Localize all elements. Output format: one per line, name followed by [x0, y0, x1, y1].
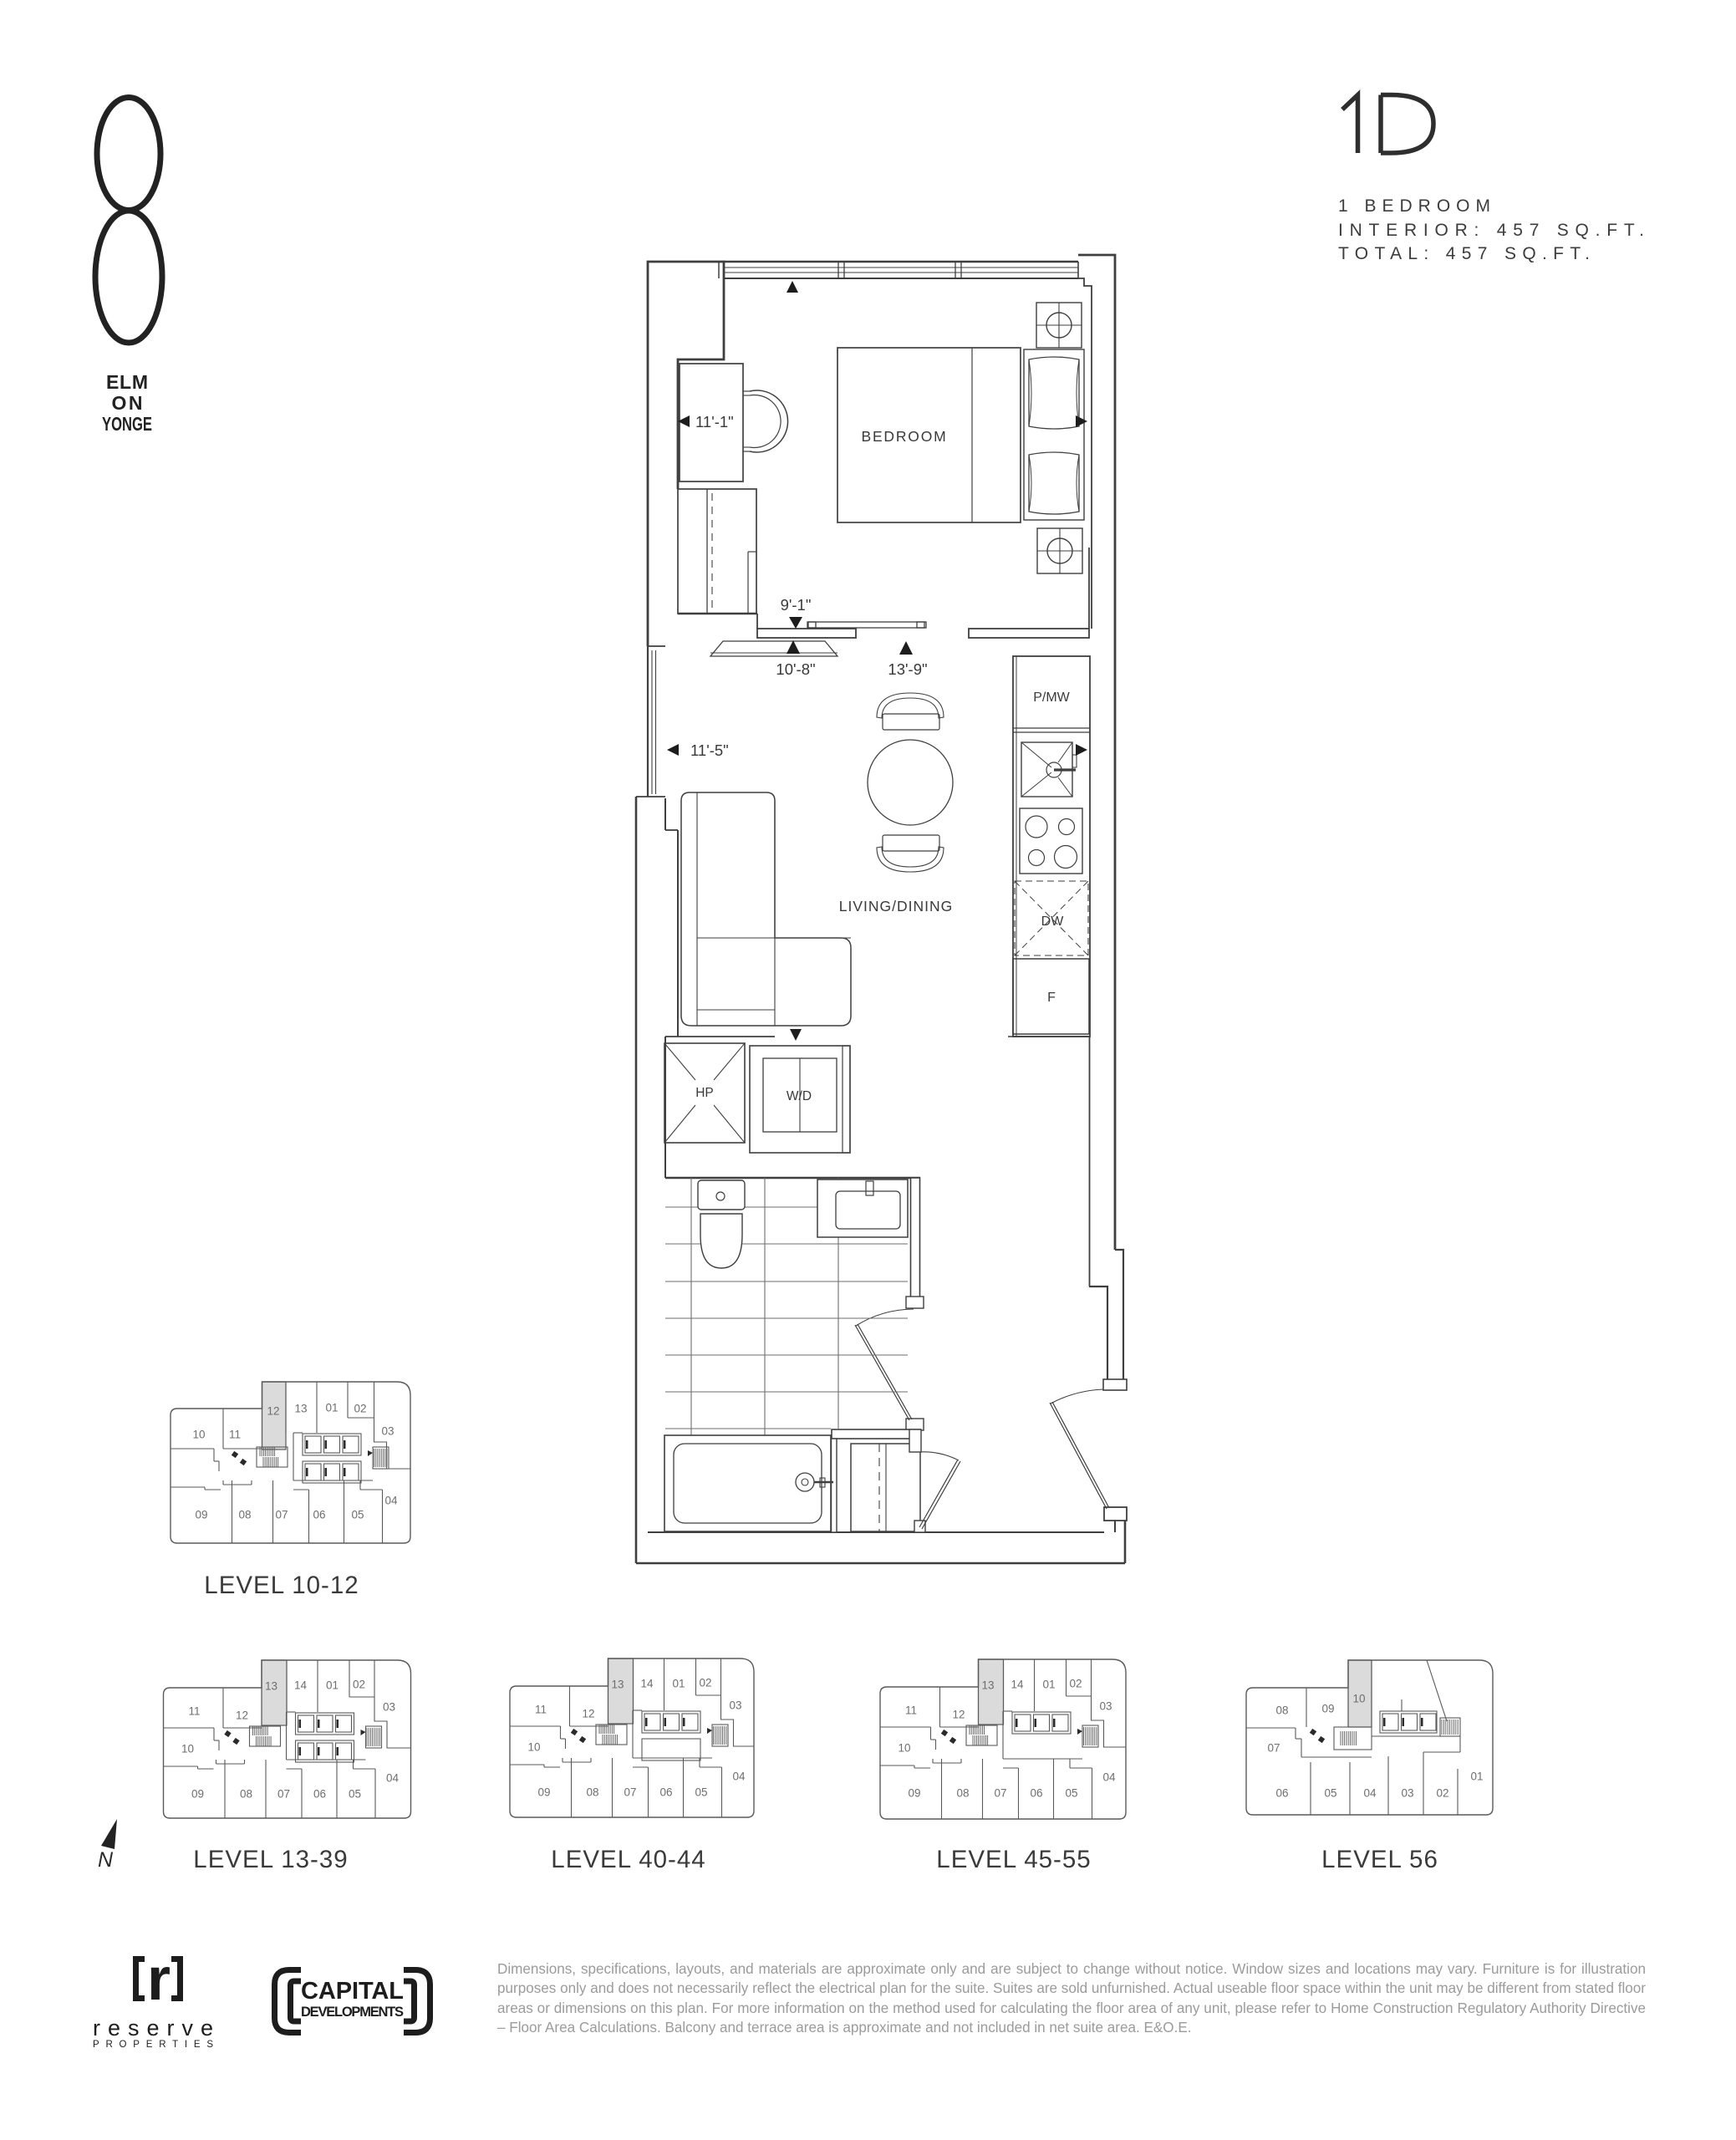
- svg-text:08: 08: [238, 1509, 251, 1521]
- svg-text:11: 11: [229, 1429, 241, 1441]
- svg-text:10: 10: [898, 1742, 910, 1755]
- svg-text:14: 14: [640, 1678, 654, 1690]
- svg-text:YONGE: YONGE: [102, 413, 152, 435]
- svg-text:LEVEL 56: LEVEL 56: [1321, 1846, 1438, 1873]
- svg-text:11: 11: [188, 1705, 200, 1718]
- svg-text:04: 04: [1102, 1771, 1116, 1784]
- svg-text:06: 06: [1030, 1787, 1042, 1800]
- svg-text:11: 11: [905, 1704, 917, 1717]
- svg-text:06: 06: [313, 1788, 326, 1801]
- svg-text:12: 12: [582, 1708, 594, 1720]
- svg-text:14: 14: [1011, 1679, 1024, 1691]
- svg-text:13'-9": 13'-9": [888, 660, 927, 678]
- svg-text:r: r: [147, 1946, 171, 2013]
- svg-text:03: 03: [1099, 1700, 1112, 1713]
- svg-text:05: 05: [695, 1786, 707, 1799]
- svg-text:01: 01: [1470, 1771, 1483, 1783]
- svg-text:LEVEL 13-39: LEVEL 13-39: [193, 1846, 348, 1873]
- svg-text:09: 09: [908, 1787, 920, 1800]
- svg-text:PROPERTIES: PROPERTIES: [93, 2040, 213, 2050]
- svg-text:07: 07: [1267, 1742, 1280, 1755]
- svg-text:02: 02: [699, 1677, 711, 1689]
- svg-text:07: 07: [994, 1787, 1006, 1800]
- svg-text:06: 06: [1275, 1787, 1288, 1800]
- svg-text:02: 02: [1436, 1787, 1448, 1800]
- svg-text:02: 02: [1069, 1678, 1082, 1690]
- svg-text:07: 07: [275, 1509, 288, 1521]
- svg-text:10: 10: [181, 1743, 194, 1755]
- svg-text:LEVEL 45-55: LEVEL 45-55: [936, 1846, 1091, 1873]
- svg-text:05: 05: [349, 1788, 361, 1801]
- svg-text:04: 04: [732, 1771, 746, 1783]
- svg-text:10'-8": 10'-8": [776, 660, 815, 678]
- svg-text:01: 01: [672, 1678, 685, 1690]
- svg-text:13: 13: [294, 1403, 307, 1415]
- svg-text:05: 05: [1065, 1787, 1077, 1800]
- svg-text:1 BEDROOM: 1 BEDROOM: [1338, 196, 1490, 216]
- svg-text:01: 01: [326, 1679, 339, 1692]
- svg-text:05: 05: [351, 1509, 364, 1521]
- svg-text:07: 07: [624, 1786, 636, 1799]
- svg-text:TOTAL: 457 SQ.FT.: TOTAL: 457 SQ.FT.: [1338, 244, 1590, 263]
- svg-text:08: 08: [586, 1786, 598, 1799]
- svg-text:14: 14: [294, 1679, 308, 1692]
- svg-text:13: 13: [265, 1680, 277, 1693]
- svg-text:03: 03: [383, 1701, 395, 1714]
- svg-text:10: 10: [192, 1429, 205, 1441]
- svg-text:ELM: ELM: [106, 371, 148, 393]
- svg-text:01: 01: [325, 1402, 338, 1414]
- svg-text:04: 04: [1363, 1787, 1377, 1800]
- svg-text:03: 03: [729, 1699, 741, 1712]
- svg-text:11'-1": 11'-1": [695, 413, 734, 431]
- svg-text:10: 10: [1352, 1693, 1365, 1705]
- svg-text:09: 09: [195, 1509, 207, 1521]
- svg-text:11'-5": 11'-5": [690, 741, 729, 759]
- svg-text:INTERIOR: 457 SQ.FT.: INTERIOR: 457 SQ.FT.: [1338, 221, 1644, 240]
- svg-text:13: 13: [981, 1679, 994, 1692]
- svg-text:03: 03: [1401, 1787, 1413, 1800]
- svg-text:12: 12: [267, 1405, 279, 1418]
- svg-text:07: 07: [277, 1788, 290, 1801]
- svg-text:06: 06: [313, 1509, 325, 1521]
- svg-text:12: 12: [952, 1709, 965, 1721]
- svg-text:09: 09: [1321, 1703, 1334, 1715]
- svg-text:02: 02: [354, 1403, 366, 1415]
- svg-text:LIVING/DINING: LIVING/DINING: [839, 898, 954, 915]
- svg-text:DEVELOPMENTS: DEVELOPMENTS: [301, 2005, 404, 2020]
- svg-text:LEVEL 10-12: LEVEL 10-12: [204, 1572, 359, 1599]
- svg-text:reserve: reserve: [93, 2015, 213, 2041]
- svg-text:9'-1": 9'-1": [781, 596, 812, 614]
- svg-text:HP: HP: [695, 1086, 714, 1100]
- svg-text:CAPITAL: CAPITAL: [301, 1978, 404, 2005]
- svg-text:05: 05: [1324, 1787, 1336, 1800]
- svg-text:W/D: W/D: [787, 1089, 812, 1103]
- svg-text:12: 12: [236, 1709, 248, 1722]
- svg-text:09: 09: [537, 1786, 550, 1799]
- svg-text:02: 02: [353, 1679, 365, 1691]
- svg-text:01: 01: [1042, 1679, 1055, 1691]
- svg-text:08: 08: [956, 1787, 969, 1800]
- svg-text:04: 04: [386, 1772, 400, 1785]
- svg-text:04: 04: [384, 1495, 398, 1507]
- svg-text:08: 08: [1275, 1704, 1288, 1717]
- svg-text:11: 11: [535, 1704, 547, 1716]
- svg-text:09: 09: [191, 1788, 204, 1801]
- svg-text:10: 10: [527, 1741, 540, 1754]
- svg-text:08: 08: [240, 1788, 252, 1801]
- svg-text:LEVEL 40-44: LEVEL 40-44: [551, 1846, 705, 1873]
- svg-text:P/MW: P/MW: [1033, 690, 1070, 705]
- svg-text:03: 03: [381, 1425, 394, 1438]
- svg-text:N: N: [98, 1848, 114, 1872]
- svg-text:13: 13: [611, 1679, 624, 1691]
- svg-text:DW: DW: [1041, 915, 1065, 929]
- svg-text:06: 06: [659, 1786, 672, 1799]
- svg-text:F: F: [1047, 991, 1056, 1005]
- svg-text:ON: ON: [112, 392, 143, 414]
- svg-text:BEDROOM: BEDROOM: [861, 428, 947, 445]
